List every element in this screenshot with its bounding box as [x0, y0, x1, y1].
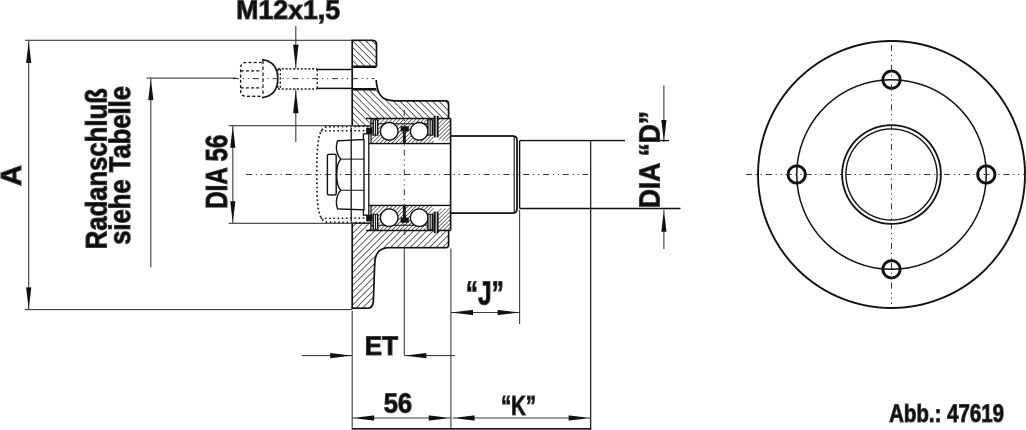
svg-text:DIA “D”: DIA “D”	[635, 111, 667, 208]
svg-text:siehe Tabelle: siehe Tabelle	[104, 86, 137, 245]
svg-text:Abb.: 47619: Abb.: 47619	[889, 400, 1004, 428]
svg-text:A: A	[0, 165, 28, 186]
svg-text:DIA 56: DIA 56	[199, 135, 234, 209]
svg-text:56: 56	[384, 387, 412, 418]
svg-text:M12x1,5: M12x1,5	[236, 0, 340, 25]
svg-text:“J”: “J”	[466, 274, 504, 311]
svg-text:“K”: “K”	[501, 390, 536, 421]
svg-text:ET: ET	[365, 331, 399, 361]
